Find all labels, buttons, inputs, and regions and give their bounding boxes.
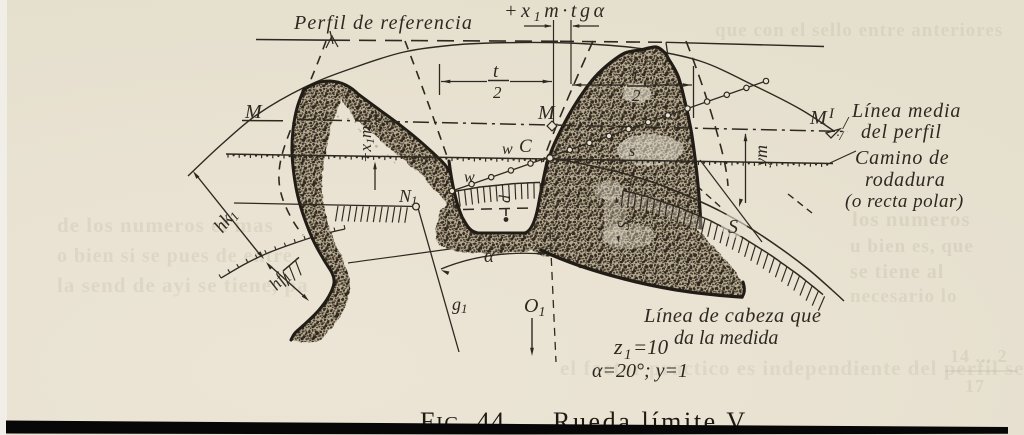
svg-text:17: 17 [965, 376, 985, 396]
svg-text:Línea de cabeza que: Línea de cabeza que [643, 305, 821, 327]
svg-text:se tiene al: se tiene al [850, 261, 944, 283]
svg-text:del perfil: del perfil [861, 121, 942, 143]
svg-text:M: M [537, 102, 556, 124]
svg-text:t: t [633, 65, 639, 86]
svg-text:C: C [519, 136, 532, 157]
svg-text:M: M [244, 101, 263, 123]
svg-text:2: 2 [493, 83, 502, 102]
svg-text:Línea media: Línea media [851, 100, 961, 122]
svg-text:Perfil de referencia: Perfil de referencia [293, 12, 473, 34]
svg-text:de los numeros el mas: de los numeros el mas [57, 213, 274, 237]
svg-text:w: w [464, 169, 475, 186]
svg-text:S: S [728, 216, 738, 238]
svg-text:s: s [626, 173, 632, 190]
svg-text:d: d [497, 194, 514, 203]
svg-text:(o recta polar): (o recta polar) [845, 191, 964, 212]
svg-text:2: 2 [632, 86, 641, 105]
svg-text:necesario lo: necesario lo [850, 286, 958, 307]
svg-text:α=20°; y=1: α=20°; y=1 [592, 360, 688, 382]
svg-text:+x1m·tgα: +x1m·tgα [504, 0, 608, 25]
svg-text:ym: ym [751, 145, 771, 168]
svg-text:t: t [493, 61, 499, 82]
svg-text:=10: =10 [633, 335, 669, 359]
svg-text:I: I [828, 106, 835, 122]
svg-text:da la medida: da la medida [674, 327, 778, 349]
svg-text:s: s [629, 143, 635, 160]
svg-text:+x1m: +x1m [356, 126, 377, 163]
svg-text:14 ... 2: 14 ... 2 [950, 346, 1008, 366]
svg-text:M: M [809, 107, 828, 129]
svg-text:rodadura: rodadura [865, 169, 945, 191]
svg-text:z: z [613, 334, 623, 359]
svg-text:w: w [502, 141, 513, 158]
svg-text:o bien si se pues de entre: o bien si se pues de entre [57, 245, 293, 267]
svg-text:·/: ·/ [836, 129, 845, 144]
svg-text:que con el sello entre anterio: que con el sello entre anteriores [715, 20, 1003, 41]
svg-text:α: α [484, 246, 495, 267]
svg-text:Camino de: Camino de [855, 147, 949, 169]
svg-text:u bien es, que: u bien es, que [850, 236, 974, 257]
